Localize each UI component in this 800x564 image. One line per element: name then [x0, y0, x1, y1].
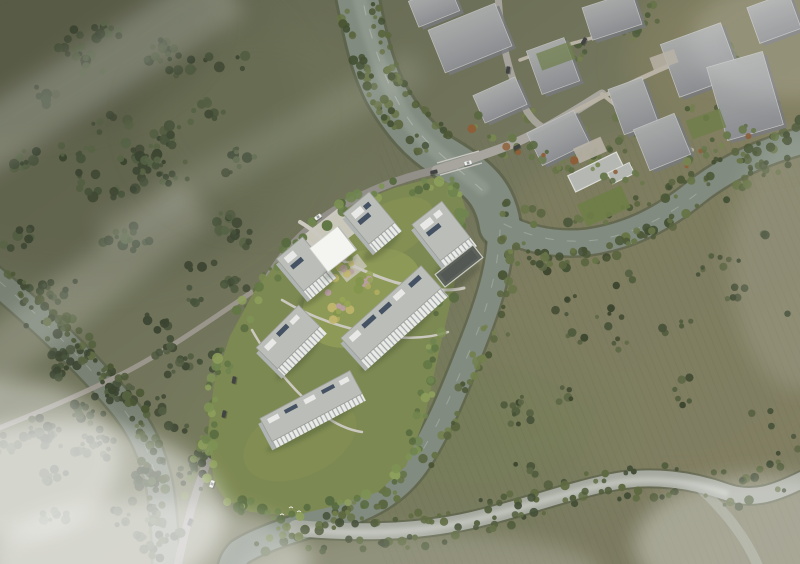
- aerial-masterplan-rendering: [0, 0, 800, 564]
- rendering-canvas: [0, 0, 800, 564]
- haze-overlay: [0, 0, 800, 564]
- atmosphere-fog: [0, 0, 800, 564]
